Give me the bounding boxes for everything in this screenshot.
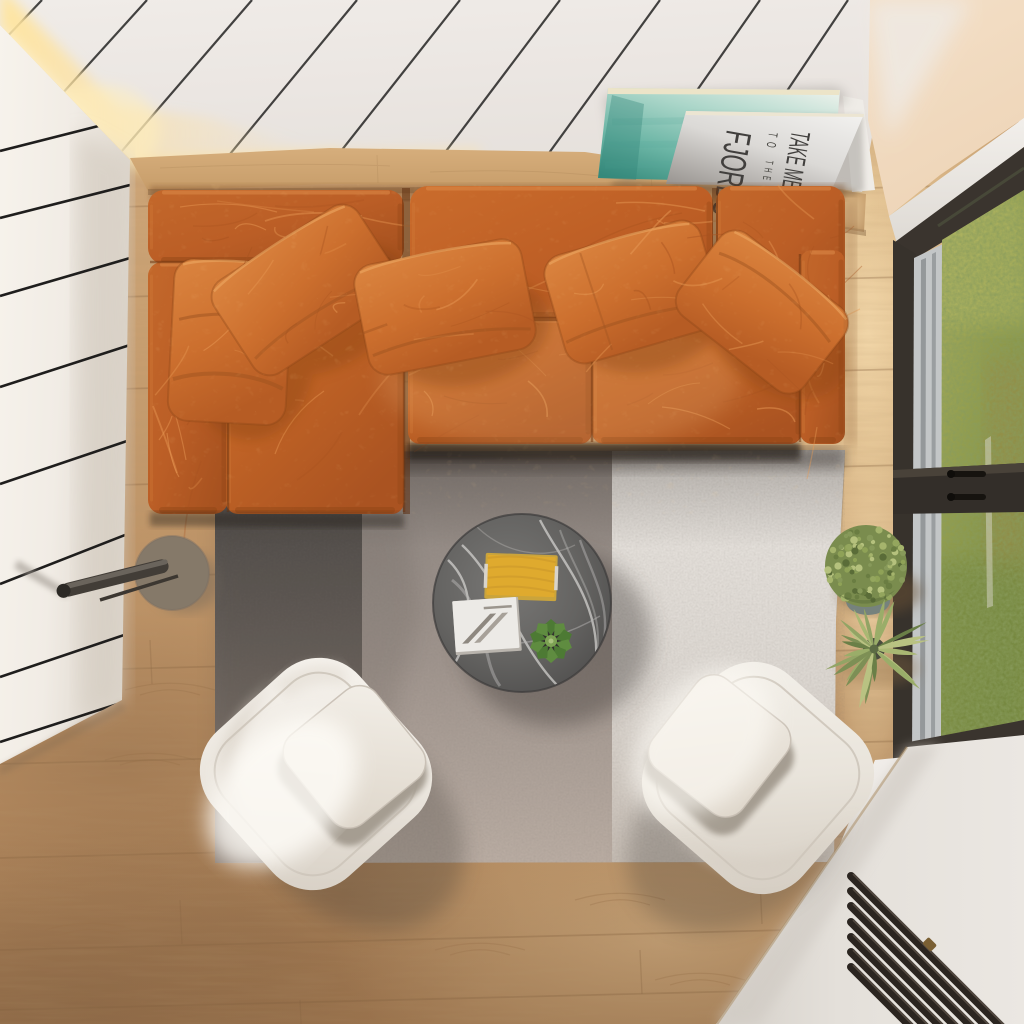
svg-text:T O: T O — [763, 131, 779, 150]
